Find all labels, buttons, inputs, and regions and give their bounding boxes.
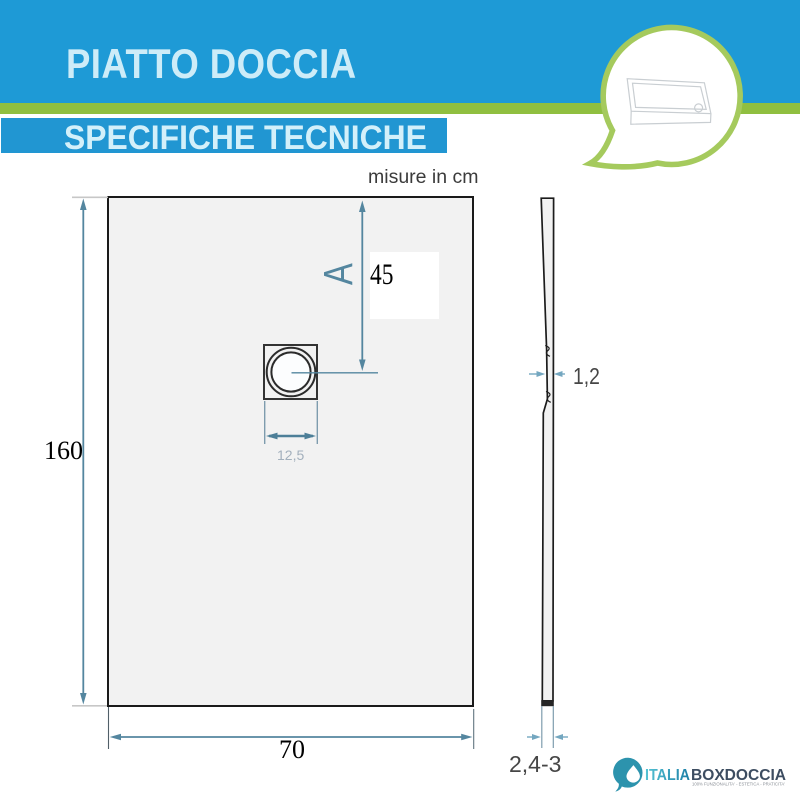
svg-text:ITALIA: ITALIA: [645, 767, 690, 784]
svg-text:100% FUNZIONALITA' - ESTETICA: 100% FUNZIONALITA' - ESTETICA - PRATICIT…: [692, 782, 785, 787]
